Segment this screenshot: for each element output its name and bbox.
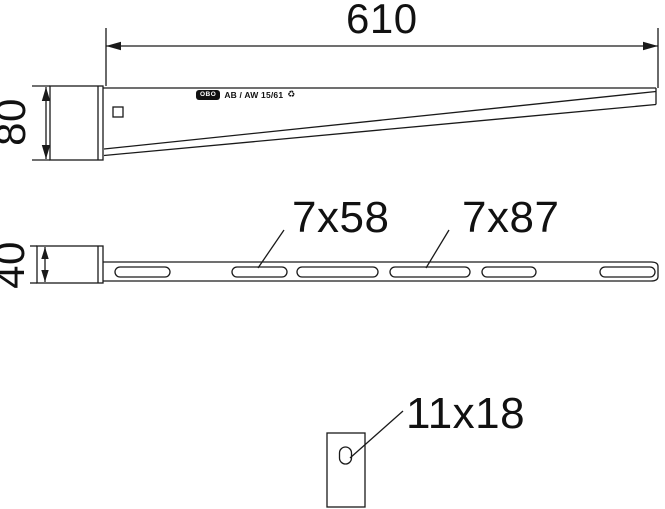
side-arm-bottom-edge-upper [104,92,656,150]
plan-slot-6-short [600,267,655,277]
detail-oblong-hole [340,447,352,464]
plan-slot-2-short [232,267,287,277]
recycle-icon: ♻ [287,90,295,99]
dim-80-label: 80 [0,92,38,152]
side-arm-bottom-edge-lower [104,105,656,156]
dim-610-arrow-left [106,42,121,50]
slot-label-7x58: 7x58 [292,196,389,240]
dim-40-arrow-top [41,247,48,259]
leader-11x18 [350,411,403,458]
product-stamp: OBO AB / AW 15/61 ♻ [196,90,295,100]
dim-80-arrow-top [42,87,50,101]
detail-plate-outline [327,433,365,507]
side-square-hole [113,107,123,117]
plan-slot-3-long [297,267,378,277]
dim-610-label: 610 [346,0,418,40]
plan-wall-plate [37,246,103,283]
product-marking-text: AB / AW 15/61 [224,91,283,100]
dim-40-label: 40 [0,235,37,295]
dim-40-arrow-bottom [41,270,48,282]
plan-slot-4-long [390,267,470,277]
plan-slot-5-short [482,267,536,277]
slot-label-7x87: 7x87 [462,196,559,240]
drawing-linework [0,0,665,509]
obo-logo: OBO [196,90,220,100]
hole-label-11x18: 11x18 [406,392,525,436]
side-view [50,86,656,160]
dim-80-arrow-bottom [42,145,50,159]
plan-slot-1-short [115,267,170,277]
plan-arm-bar [103,262,658,281]
dim-610-arrow-right [643,42,658,50]
side-wall-plate [50,86,103,160]
technical-drawing-canvas: 610 80 40 7x58 7x87 11x18 OBO AB / AW 15… [0,0,665,509]
detail-view [327,411,403,507]
